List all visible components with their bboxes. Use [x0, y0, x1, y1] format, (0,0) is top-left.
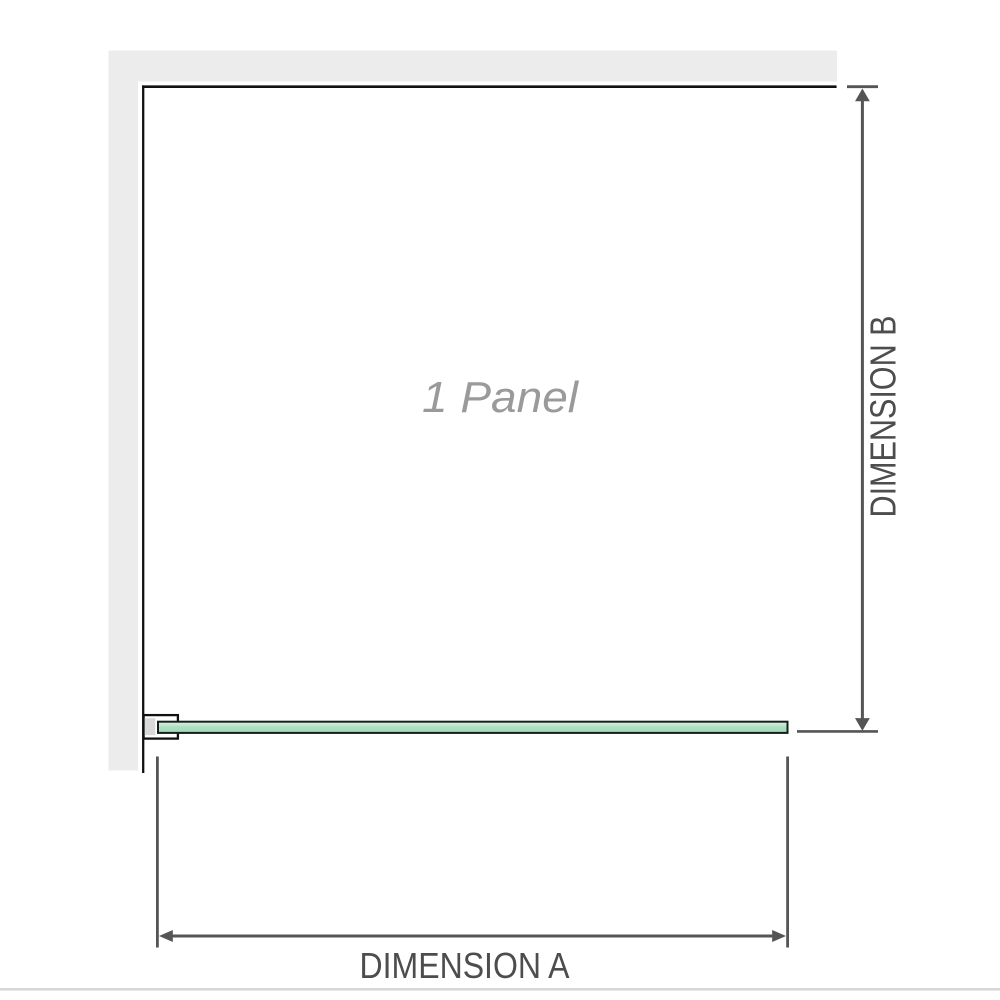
svg-text:1 Panel: 1 Panel [422, 373, 579, 422]
svg-text:DIMENSION A: DIMENSION A [360, 945, 570, 986]
svg-text:DIMENSION B: DIMENSION B [863, 316, 904, 518]
